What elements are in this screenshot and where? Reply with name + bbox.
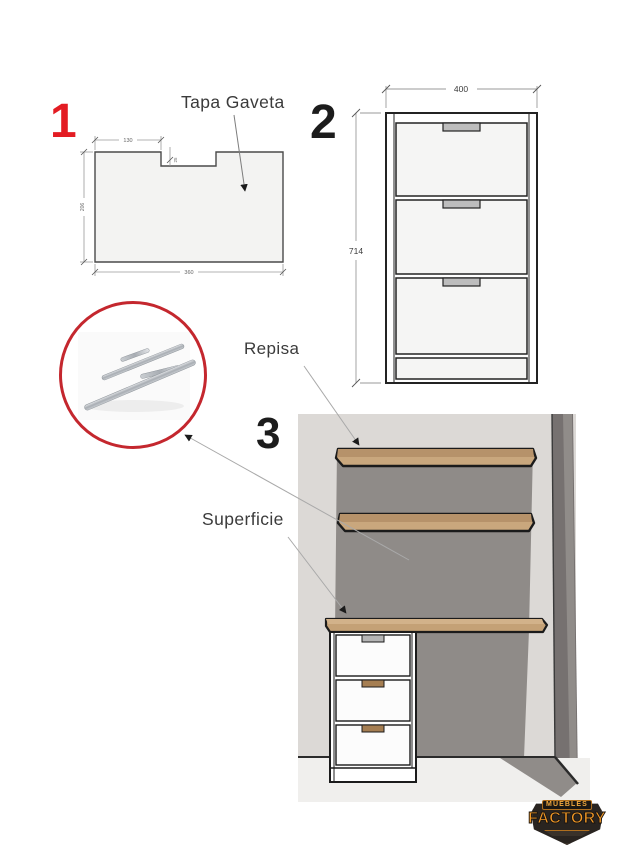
invisible-supports-detail-circle bbox=[59, 301, 207, 449]
cabinet-drawer-3 bbox=[396, 278, 527, 354]
desk-surface bbox=[326, 619, 547, 632]
cabinet-drawer-1 bbox=[396, 123, 527, 196]
step-3-number: 3 bbox=[256, 412, 280, 456]
step-2-number: 2 bbox=[310, 99, 337, 147]
tapa-gaveta-outline bbox=[95, 152, 283, 262]
instruction-sheet: 1 2 3 Tapa Gaveta Repisa Superficie Sopo… bbox=[0, 0, 622, 863]
dim-206: 206 bbox=[80, 203, 86, 212]
cabinet-handle-3 bbox=[443, 278, 480, 286]
cabinet-handle-2 bbox=[443, 200, 480, 208]
shelf-upper bbox=[336, 449, 536, 466]
desk-handle-3 bbox=[362, 725, 384, 732]
desk-handle-2 bbox=[362, 680, 384, 687]
shelf-lower bbox=[338, 514, 534, 531]
dim-25: 25 bbox=[173, 157, 178, 163]
dim-130: 130 bbox=[123, 138, 132, 144]
label-tapa-gaveta: Tapa Gaveta bbox=[181, 92, 285, 113]
desk-handle-1 bbox=[362, 635, 384, 642]
muebles-factory-logo: MUEBLES FACTORY bbox=[529, 797, 605, 849]
scene-desk-render bbox=[296, 410, 590, 802]
label-repisa: Repisa bbox=[244, 339, 299, 359]
dim-400: 400 bbox=[454, 84, 468, 94]
cabinet-bottom-band bbox=[396, 358, 527, 379]
logo-text-muebles: MUEBLES bbox=[542, 800, 592, 810]
label-superficie: Superficie bbox=[202, 509, 284, 530]
dim-360: 360 bbox=[184, 270, 193, 276]
invisible-supports-image bbox=[62, 304, 204, 446]
logo-text-factory: FACTORY bbox=[528, 810, 606, 828]
drawing-cabinet-front: 400 714 bbox=[340, 78, 550, 390]
cabinet-drawer-2 bbox=[396, 200, 527, 274]
cabinet-handle-1 bbox=[443, 123, 480, 131]
dim-714: 714 bbox=[349, 246, 363, 256]
drawing-tapa-gaveta: 130 25 206 360 bbox=[40, 125, 310, 290]
desk-drawer-unit bbox=[330, 632, 416, 782]
